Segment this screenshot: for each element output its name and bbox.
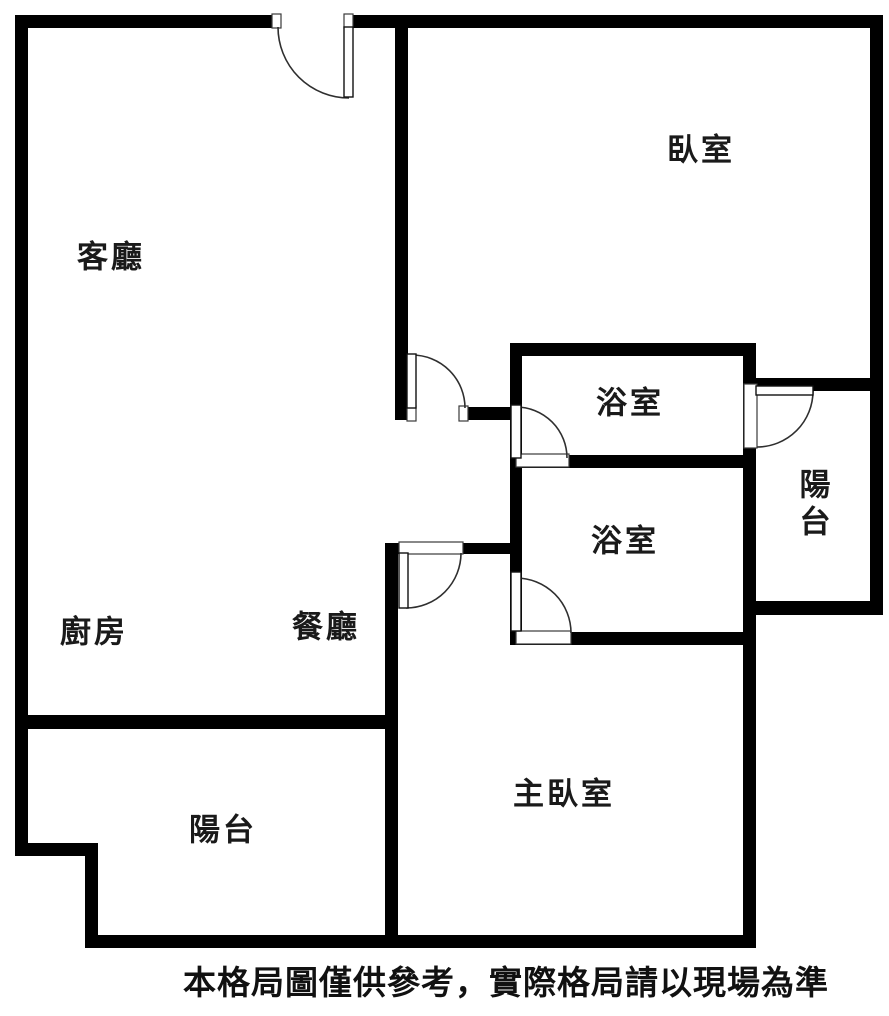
- bathroom-lower-door-arc: [516, 578, 571, 633]
- entrance-opening: [280, 14, 345, 29]
- room-label-bedroom: 臥室: [667, 136, 735, 167]
- balcony-right-door-arc: [757, 391, 813, 447]
- room-label-master-bedroom: 主臥室: [513, 780, 615, 811]
- master-bedroom-door-panel: [399, 553, 408, 608]
- room-label-bathroom-lower: 浴室: [591, 527, 659, 558]
- walls: [15, 15, 883, 948]
- bathroom-lower-door-panel: [511, 572, 521, 631]
- bedroom-door-jamb-right: [459, 406, 468, 421]
- wall-step-horizontal: [15, 843, 97, 856]
- room-label-balcony-bottom: 陽台: [189, 816, 257, 847]
- room-label-living-room: 客廳: [77, 243, 145, 274]
- entrance-jamb-left: [272, 14, 281, 28]
- bathroom-upper-door-arc: [516, 407, 567, 458]
- wall-outer-right: [870, 15, 883, 615]
- room-label-balcony-right: 陽台: [796, 468, 827, 542]
- wall-step-vertical: [85, 843, 98, 948]
- entrance-jamb-right: [344, 14, 353, 28]
- master-bedroom-door-arc: [406, 553, 461, 608]
- balcony-right-door-panel: [756, 386, 813, 395]
- entrance-door-arc: [278, 27, 349, 98]
- room-label-dining-room: 餐廳: [292, 613, 360, 644]
- room-label-bathroom-upper: 浴室: [596, 389, 664, 420]
- balcony-right-door-opening: [744, 384, 757, 448]
- disclaimer-caption: 本格局圖僅供參考，實際格局請以現場為準: [183, 963, 829, 1003]
- entrance-door-panel: [344, 27, 353, 97]
- bedroom-door-panel: [407, 354, 416, 408]
- wall-living-bedroom-divider: [395, 15, 408, 420]
- bathroom-lower-door-opening: [516, 631, 571, 644]
- wall-bathroom-upper-top: [510, 343, 755, 356]
- floor-plan: 客廳 臥室 浴室 陽台 浴室 廚房 餐廳 陽台 主臥室 本格局圖僅供參考，實際格…: [0, 0, 889, 1016]
- bathroom-upper-door-opening: [516, 454, 569, 467]
- wall-outer-top: [15, 15, 883, 28]
- bedroom-door-arc: [412, 355, 465, 408]
- wall-outer-bottom: [85, 935, 756, 948]
- bedroom-door-opening: [415, 406, 461, 421]
- wall-balcony-right-bottom: [755, 601, 883, 615]
- floor-plan-drawing: [0, 0, 889, 1016]
- wall-master-bedroom-left: [385, 543, 398, 948]
- bathroom-upper-door-panel: [511, 405, 521, 458]
- doors: [278, 27, 813, 633]
- master-bedroom-door-opening: [399, 542, 463, 554]
- room-label-kitchen: 廚房: [60, 618, 128, 649]
- wall-kitchen-balcony-divider: [15, 715, 398, 729]
